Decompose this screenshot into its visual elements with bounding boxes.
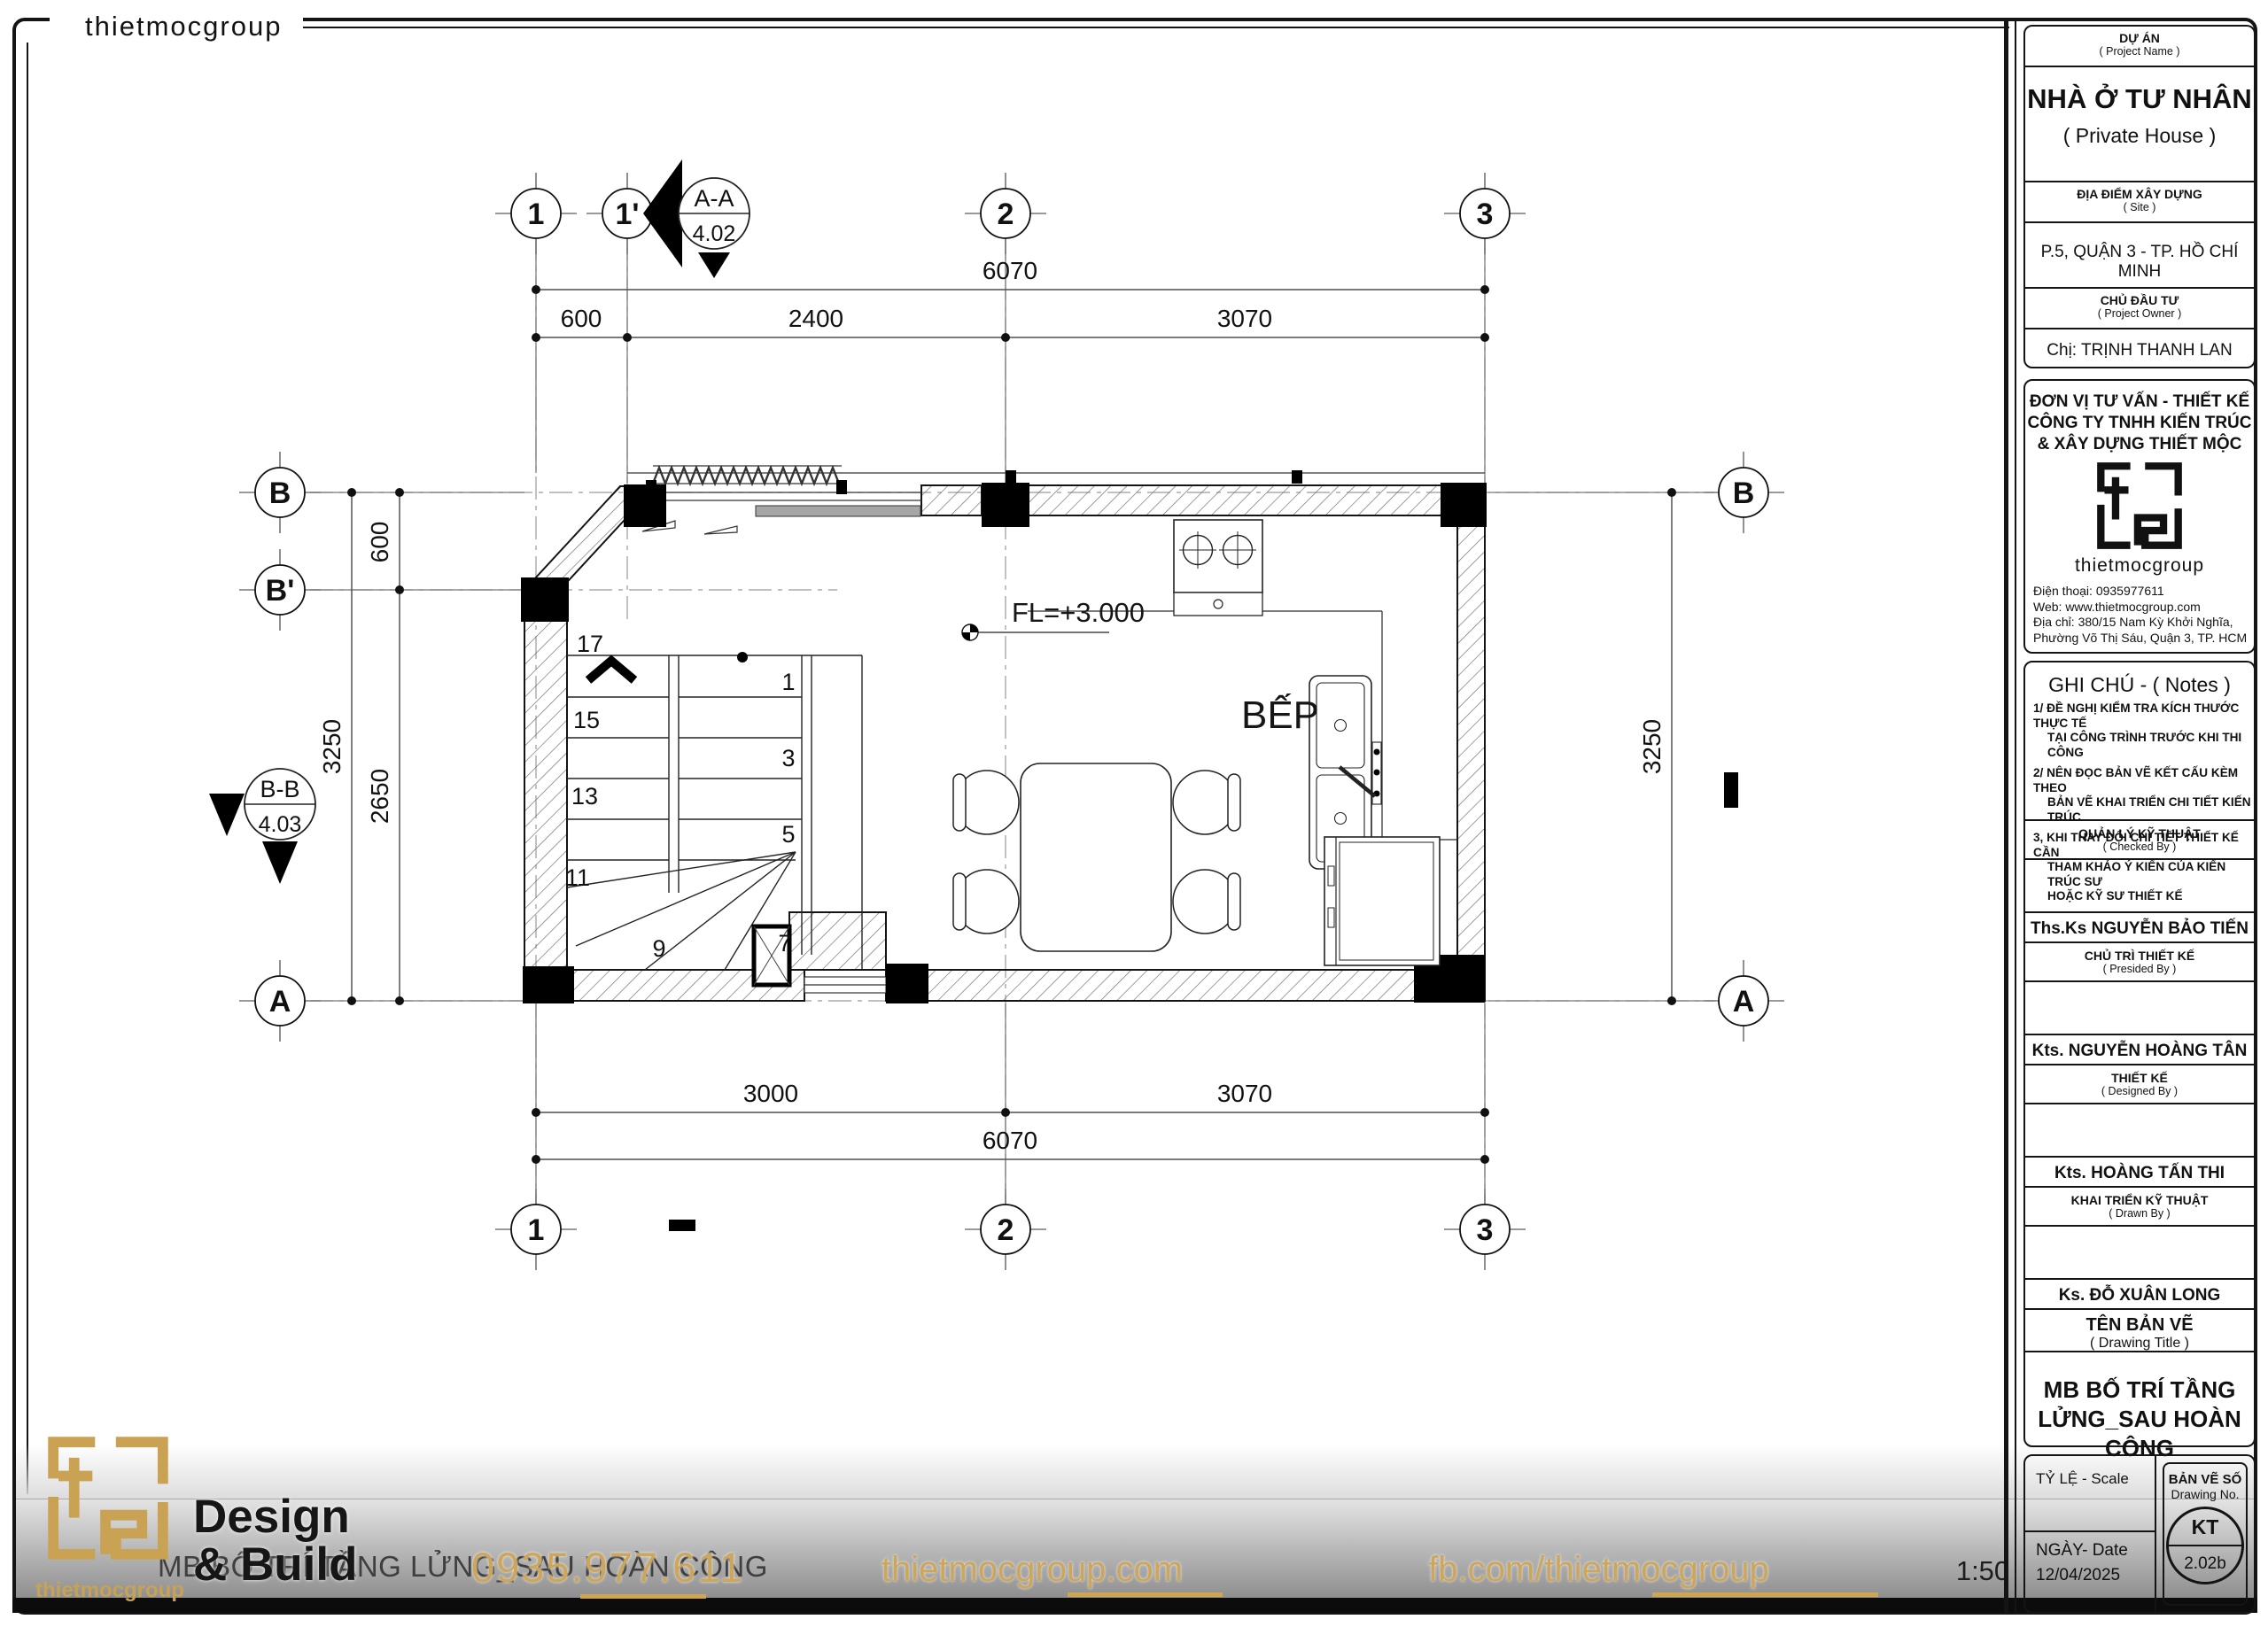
footer-design-build: Design & Build	[193, 1493, 357, 1589]
sheet-code: KT	[2169, 1509, 2241, 1546]
notes-title: GHI CHÚ - ( Notes )	[2025, 673, 2254, 701]
contact-addr2: Phường Võ Thị Sáu, Quận 3, TP. HCM	[2033, 631, 2254, 647]
sig-drawn-header: KHAI TRIỂN KỸ THUẬT ( Drawn By )	[2025, 1186, 2254, 1227]
titleblock-consultant-panel: ĐƠN VỊ TƯ VẤN - THIẾT KẾ CÔNG TY TNHH KI…	[2023, 379, 2256, 654]
contact-phone: Điện thoại: 0935977611	[2033, 584, 2254, 600]
sig-space	[2025, 982, 2254, 1034]
sig-space	[2025, 1104, 2254, 1156]
titleblock-separator	[2004, 18, 2008, 1615]
project-name: NHÀ Ở TƯ NHÂN	[2025, 83, 2254, 115]
sig-checked-name: Ths.Ks NGUYỄN BẢO TIẾN	[2025, 911, 2254, 941]
footer-gradient-fade	[16, 1444, 2254, 1499]
sheet-border-inner-top	[299, 27, 2009, 28]
sheet-number-label: BẢN VẼ SỐ	[2164, 1472, 2246, 1487]
consultant-line2: CÔNG TY TNHH KIẾN TRÚC	[2025, 413, 2254, 434]
sig-designed-header: THIẾT KẾ ( Designed By )	[2025, 1064, 2254, 1104]
notes-list: 1/ ĐỀ NGHỊ KIỂM TRA KÍCH THƯỚC THỰC TẾ T…	[2025, 701, 2254, 819]
note-line: 2/ NÊN ĐỌC BẢN VẼ KẾT CẤU KÈM THEO	[2025, 766, 2254, 795]
site-label-en: ( Site )	[2025, 201, 2254, 213]
footer-phone: 0935.977.611	[471, 1543, 744, 1592]
owner-value: Chị: TRỊNH THANH LAN	[2025, 341, 2254, 360]
scale-label: TỶ LỆ - Scale	[2025, 1456, 2155, 1532]
sheet-number-circle: KT 2.02b	[2166, 1507, 2244, 1584]
sig-space	[2025, 1227, 2254, 1278]
note-line: TẠI CÔNG TRÌNH TRƯỚC KHI THI CÔNG	[2025, 731, 2254, 760]
sig-presided-name: Kts. NGUYỄN HOÀNG TÂN	[2025, 1034, 2254, 1064]
site-value: P.5, QUẬN 3 - TP. HỒ CHÍ MINH	[2025, 243, 2254, 282]
sheet-number-label-en: Drawing No.	[2164, 1487, 2246, 1501]
footer-brand-logo-icon	[43, 1428, 174, 1571]
titleblock-separator-thin	[2015, 18, 2016, 1615]
date-value: 12/04/2025	[2025, 1561, 2155, 1585]
date-label: NGÀY- Date	[2025, 1532, 2155, 1561]
sig-presided-header: CHỦ TRÌ THIẾT KẾ ( Presided By )	[2025, 941, 2254, 982]
sig-designed-name: Kts. HOÀNG TẤN THI	[2025, 1156, 2254, 1186]
header-brand: thietmocgroup	[85, 11, 282, 43]
drawing-title-label: TÊN BẢN VẼ ( Drawing Title )	[2025, 1308, 2254, 1352]
sig-drawn-name: Ks. ĐỖ XUÂN LONG	[2025, 1278, 2254, 1308]
footer-facebook-underline	[1652, 1592, 1878, 1597]
note-line: 1/ ĐỀ NGHỊ KIỂM TRA KÍCH THƯỚC THỰC TẾ	[2025, 701, 2254, 731]
titleblock-notes-panel: GHI CHÚ - ( Notes ) 1/ ĐỀ NGHỊ KIỂM TRA …	[2023, 661, 2256, 1447]
footer-design-line1: Design	[193, 1493, 357, 1541]
contact-web: Web: www.thietmocgroup.com	[2033, 600, 2254, 616]
contact-addr1: Địa chỉ: 380/15 Nam Kỳ Khởi Nghĩa,	[2033, 615, 2254, 631]
footer-facebook: fb.com/thietmocgroup	[1375, 1550, 1822, 1590]
sheet-no: 2.02b	[2169, 1546, 2241, 1582]
sheet-border-inner-left	[27, 43, 28, 1494]
footer-black-bar	[12, 1598, 2257, 1613]
consultant-line3: & XÂY DỰNG THIẾT MỘC	[2025, 434, 2254, 455]
owner-label-en: ( Project Owner )	[2025, 307, 2254, 320]
footer-website-underline	[1068, 1592, 1223, 1597]
footer-brand-label: thietmocgroup	[32, 1578, 188, 1603]
project-label: DỰ ÁN	[2025, 31, 2254, 45]
footer-design-line2: & Build	[193, 1541, 357, 1589]
footer-phone-underline	[580, 1594, 706, 1599]
consultant-line1: ĐƠN VỊ TƯ VẤN - THIẾT KẾ	[2025, 391, 2254, 413]
consultant-logo-icon	[2093, 461, 2186, 553]
sheet-border	[12, 18, 2257, 1615]
consultant-brand: thietmocgroup	[2025, 555, 2254, 577]
footer-website: thietmocgroup.com	[842, 1550, 1223, 1590]
project-name-en: ( Private House )	[2025, 124, 2254, 148]
site-label: ĐỊA ĐIỂM XÂY DỰNG	[2025, 187, 2254, 201]
drawing-title-value: MB BỐ TRÍ TẦNG LỬNG_SAU HOÀN CÔNG	[2025, 1352, 2254, 1463]
titleblock-scale-panel: TỶ LỆ - Scale NGÀY- Date 12/04/2025 BẢN …	[2023, 1454, 2256, 1614]
project-label-en: ( Project Name )	[2025, 45, 2254, 58]
titleblock-project-panel: DỰ ÁN ( Project Name ) NHÀ Ở TƯ NHÂN ( P…	[2023, 25, 2256, 368]
owner-label: CHỦ ĐẦU TƯ	[2025, 293, 2254, 307]
